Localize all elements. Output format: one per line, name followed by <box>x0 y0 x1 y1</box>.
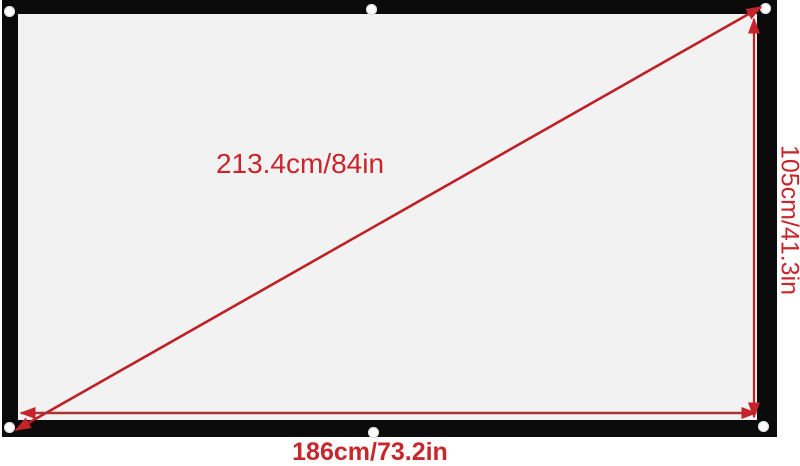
grommet-hole-top-center <box>366 4 377 15</box>
grommet-hole-top-left <box>4 6 15 17</box>
grommet-hole-bottom-left <box>4 422 15 433</box>
height-dimension-label: 105cm/41.3in <box>775 145 800 295</box>
diagonal-dimension-label: 213.4cm/84in <box>170 148 430 180</box>
grommet-hole-top-right <box>760 3 771 14</box>
screen-frame <box>2 0 777 437</box>
grommet-hole-bottom-right <box>758 421 769 432</box>
width-dimension-label: 186cm/73.2in <box>240 438 500 466</box>
product-dimension-diagram: 213.4cm/84in 105cm/41.3in 186cm/73.2in <box>0 0 800 466</box>
screen-surface <box>18 14 757 420</box>
grommet-hole-bottom-center <box>368 427 379 438</box>
